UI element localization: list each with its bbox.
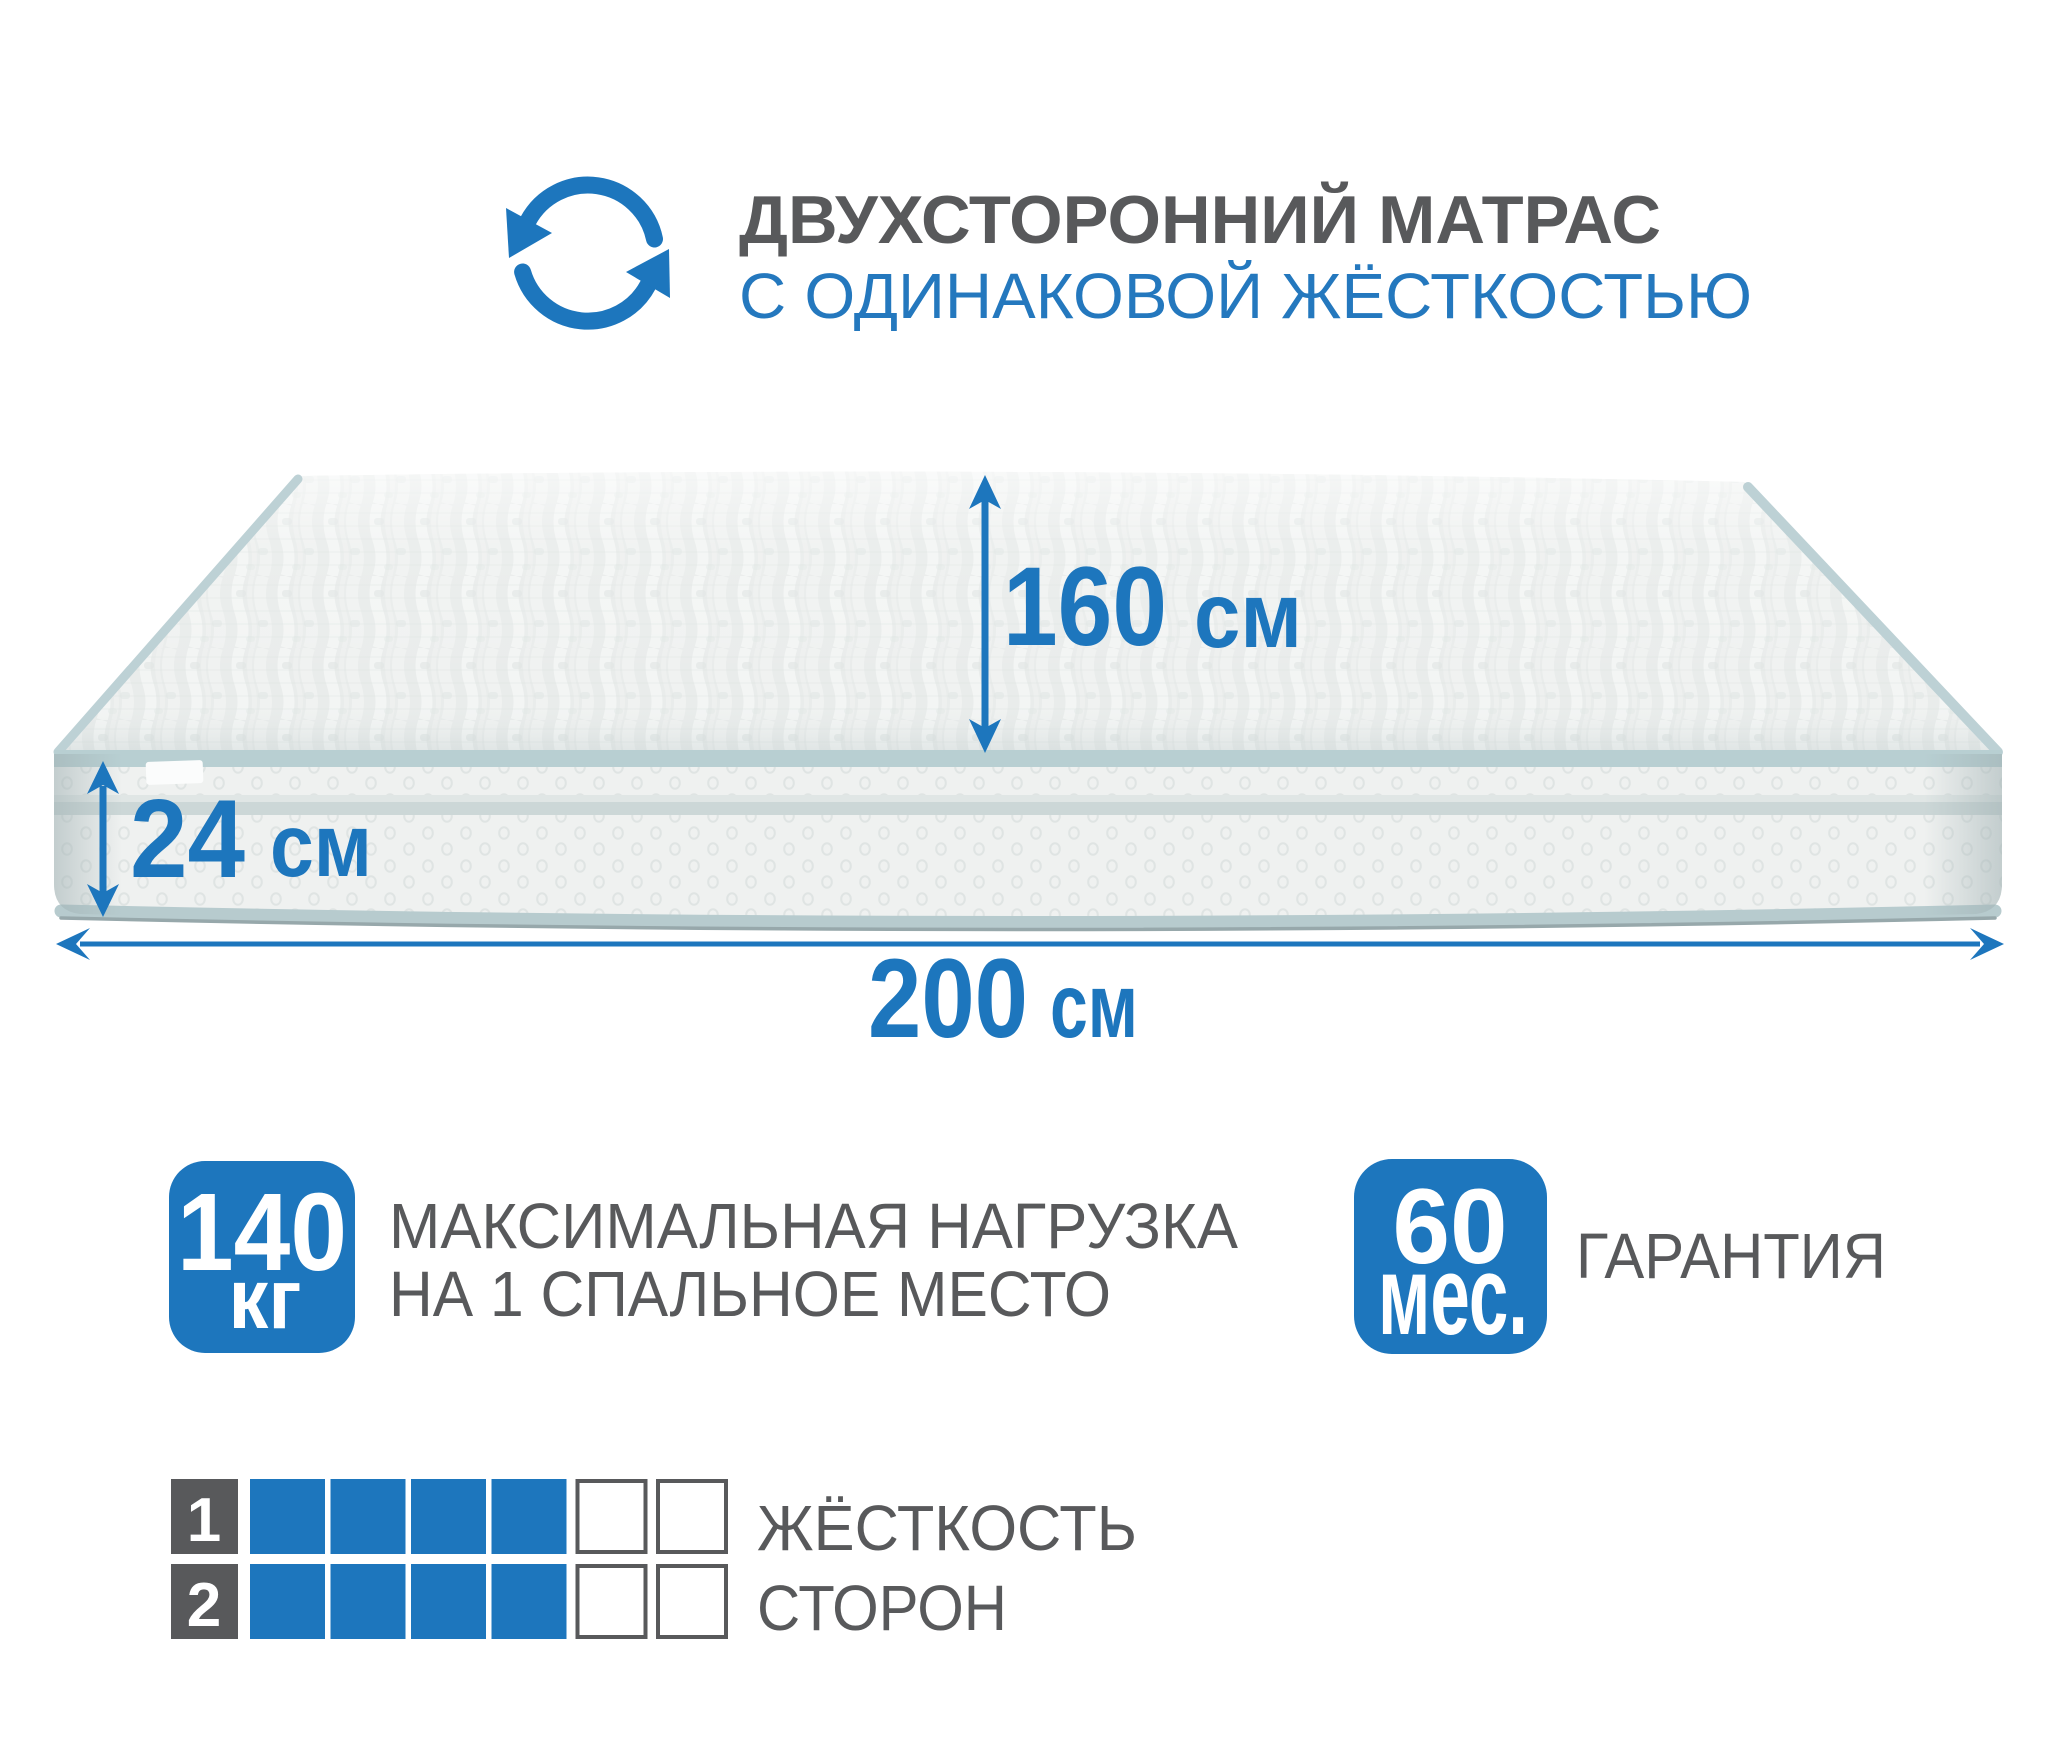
- svg-text:ДВУХСТОРОННИЙ МАТРАС: ДВУХСТОРОННИЙ МАТРАС: [739, 181, 1661, 258]
- svg-text:С ОДИНАКОВОЙ ЖЁСТКОСТЬЮ: С ОДИНАКОВОЙ ЖЁСТКОСТЬЮ: [739, 259, 1752, 332]
- svg-text:кг: кг: [229, 1252, 302, 1347]
- svg-text:см: см: [270, 795, 372, 895]
- svg-text:ЖЁСТКОСТЬ: ЖЁСТКОСТЬ: [757, 1492, 1137, 1564]
- svg-text:мес.: мес.: [1378, 1233, 1528, 1358]
- svg-text:см: см: [1050, 956, 1138, 1057]
- svg-text:НА 1 СПАЛЬНОЕ МЕСТО: НА 1 СПАЛЬНОЕ МЕСТО: [389, 1258, 1111, 1330]
- svg-text:2: 2: [187, 1571, 221, 1640]
- svg-text:см: см: [1194, 563, 1302, 667]
- svg-text:ГАРАНТИЯ: ГАРАНТИЯ: [1576, 1220, 1886, 1292]
- svg-text:СТОРОН: СТОРОН: [757, 1572, 1007, 1644]
- svg-text:1: 1: [187, 1486, 221, 1555]
- svg-text:МАКСИМАЛЬНАЯ НАГРУЗКА: МАКСИМАЛЬНАЯ НАГРУЗКА: [389, 1190, 1238, 1262]
- svg-text:200: 200: [868, 936, 1028, 1061]
- svg-text:24: 24: [130, 777, 245, 901]
- svg-text:160: 160: [1003, 544, 1167, 669]
